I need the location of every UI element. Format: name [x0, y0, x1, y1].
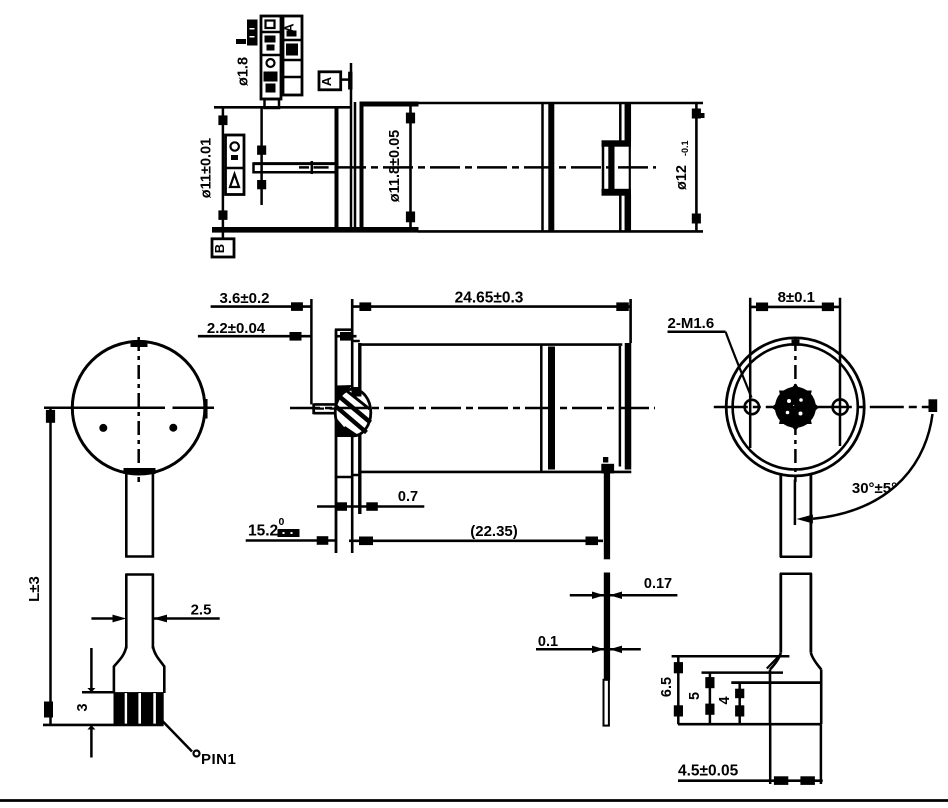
svg-text:30°±5°: 30°±5° [852, 480, 897, 497]
svg-text:ø11±0.01: ø11±0.01 [199, 138, 215, 198]
svg-text:A: A [319, 76, 334, 86]
svg-text:2-M1.6: 2-M1.6 [668, 315, 715, 332]
svg-text:24.65±0.3: 24.65±0.3 [455, 290, 524, 307]
svg-text:5: 5 [687, 692, 703, 700]
svg-text:6.5: 6.5 [659, 677, 675, 697]
svg-text:3: 3 [75, 703, 91, 711]
svg-text:(22.35): (22.35) [470, 523, 518, 540]
svg-text:0.7: 0.7 [398, 489, 418, 505]
svg-text:ø12: ø12 [674, 165, 690, 190]
svg-text:0.1: 0.1 [538, 634, 558, 650]
svg-text:ø1.8: ø1.8 [236, 57, 252, 86]
svg-text:3.6±0.2: 3.6±0.2 [220, 290, 270, 307]
svg-text:L±3: L±3 [26, 576, 43, 602]
svg-text:B: B [212, 244, 227, 253]
svg-text:2.2±0.04: 2.2±0.04 [207, 320, 266, 337]
svg-text:15.2: 15.2 [248, 523, 278, 540]
svg-text:8±0.1: 8±0.1 [778, 289, 815, 306]
svg-text:2.5: 2.5 [191, 602, 212, 619]
svg-text:4.5±0.05: 4.5±0.05 [678, 763, 739, 780]
svg-text:0: 0 [279, 516, 285, 528]
svg-text:-0.1: -0.1 [680, 140, 690, 156]
svg-text:0.17: 0.17 [644, 576, 672, 592]
svg-text:4: 4 [717, 696, 733, 704]
svg-text:PIN1: PIN1 [201, 751, 236, 768]
svg-text:ø11.8±0.05: ø11.8±0.05 [387, 130, 403, 202]
